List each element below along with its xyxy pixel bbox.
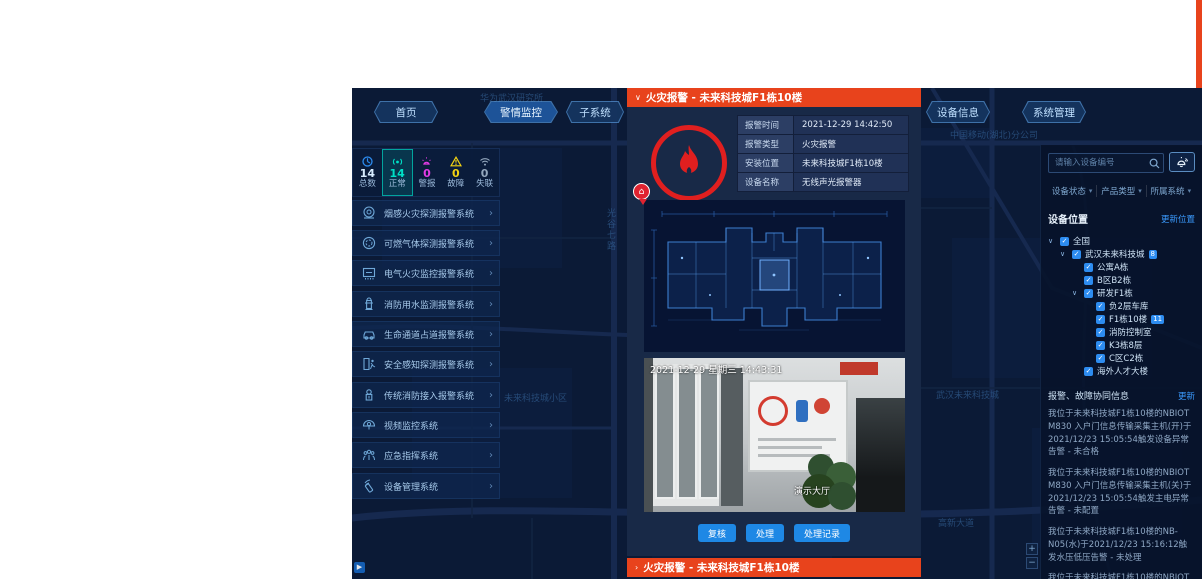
fire-alarm-title: 火灾报警 - 未来科技城F1栋10楼	[646, 90, 802, 105]
sidebar-item-label: 消防用水监测报警系统	[384, 298, 489, 311]
checkbox-checked[interactable]: ✓	[1060, 237, 1069, 246]
checkbox-checked[interactable]: ✓	[1096, 328, 1105, 337]
checkbox-checked[interactable]: ✓	[1084, 367, 1093, 376]
stat-total-label: 总数	[359, 180, 376, 189]
alarm-type-label: 报警类型	[738, 135, 794, 154]
sidebar-item-security-sense-system[interactable]: 安全感知探测报警系统›	[352, 351, 500, 377]
search-icon[interactable]	[1149, 154, 1160, 173]
stat-normal-value: 14	[390, 168, 405, 179]
checkbox-checked[interactable]: ✓	[1096, 315, 1105, 324]
tree-node-building[interactable]: ∨✓研发F1栋	[1048, 287, 1195, 299]
tree-node-floor[interactable]: ✓负2层车库	[1048, 300, 1195, 312]
sidebar-item-fire-water-system[interactable]: 消防用水监测报警系统›	[352, 291, 500, 317]
chevron-down-icon: ▾	[1138, 187, 1142, 195]
sidebar-item-electrical-fire-system[interactable]: 电气火灾监控报警系统›	[352, 260, 500, 286]
chevron-right-icon: ›	[489, 481, 493, 492]
tree-node-building[interactable]: ✓公寓A栋	[1048, 261, 1195, 273]
sidebar-item-gas-system[interactable]: 可燃气体探测报警系统›	[352, 230, 500, 256]
checkbox-checked[interactable]: ✓	[1084, 263, 1093, 272]
device-search-input[interactable]	[1048, 153, 1164, 173]
chevron-right-icon: ›	[489, 299, 493, 310]
chevron-right-icon: ›	[489, 420, 493, 431]
sidebar-item-label: 可燃气体探测报警系统	[384, 237, 489, 250]
chevron-down-icon: ▾	[1188, 187, 1192, 195]
collapse-icon: ∨	[635, 93, 641, 102]
people-icon	[361, 447, 377, 463]
alarm-map-pin[interactable]: ⌂	[633, 183, 650, 200]
nav-subsystems-label: 子系统	[567, 102, 623, 122]
fire-icon	[651, 125, 727, 201]
sidebar-item-label: 传统消防接入报警系统	[384, 389, 489, 402]
alert-message-list: 我位于未来科技城F1栋10楼的NBIOT M830 入户门信息传输采集主机(开)…	[1048, 408, 1195, 579]
camera-doorway	[721, 368, 743, 506]
signal-icon	[391, 156, 404, 167]
sidebar-item-label: 烟感火灾探测报警系统	[384, 207, 489, 220]
device-panel: 设备状态▾ 产品类型▾ 所属系统▾ 设备位置 更新位置 ∨✓全国 ∨✓武汉未来科…	[1040, 145, 1202, 579]
stat-offline[interactable]: 0 失联	[470, 149, 499, 196]
alert-banner-edge	[1196, 0, 1202, 88]
fire-alarm-modal-body: 报警时间2021-12-29 14:42:50 报警类型火灾报警 安装位置未来科…	[627, 107, 921, 556]
glass-pane	[657, 369, 673, 497]
fire-alarm-collapsed-bar[interactable]: › 火灾报警 - 未来科技城F1栋10楼	[627, 558, 921, 577]
table-row: 安装位置未来科技城F1栋10楼	[738, 154, 909, 173]
tree-node-country[interactable]: ∨✓全国	[1048, 235, 1195, 247]
sidebar-item-label: 视频监控系统	[384, 419, 489, 432]
tree-node-building[interactable]: ✓海外人才大楼	[1048, 365, 1195, 377]
red-wall-banner	[840, 362, 878, 375]
table-row: 设备名称无线声光报警器	[738, 173, 909, 192]
remote-control-icon	[361, 478, 377, 494]
glass-pane	[679, 369, 695, 497]
stat-alarm-label: 警报	[418, 180, 435, 189]
dashboard: 华为武汉研究所 中国移动(湖北)分公司 光谷七路 未来科技城小区 高新大道 武汉…	[352, 88, 1202, 579]
device-stats-panel: 14 总数 14 正常 0 警报 0 故障 0 失联	[352, 148, 500, 197]
nav-system-mgmt-button[interactable]: 系统管理	[1022, 101, 1086, 123]
camera-watermark: 演示大厅	[794, 484, 830, 497]
poster-text-line	[758, 438, 836, 441]
checkbox-checked[interactable]: ✓	[1084, 276, 1093, 285]
plant	[802, 450, 860, 512]
fire-alarm-modal: ∨ 火灾报警 - 未来科技城F1栋10楼 报警时间2021-12-29 14:4…	[627, 88, 921, 556]
checkbox-checked[interactable]: ✓	[1084, 289, 1093, 298]
nav-home-label: 首页	[375, 102, 437, 122]
camera-glass-wall	[653, 364, 719, 506]
electric-meter-icon	[361, 265, 377, 281]
camera-dark-corner	[856, 398, 905, 512]
handle-button[interactable]: 处理	[746, 524, 784, 542]
hydrant-icon	[361, 296, 377, 312]
alarm-actions: 复核 处理 处理记录	[627, 524, 921, 542]
poster-ring-logo	[758, 396, 788, 426]
device-location-title: 设备位置	[1048, 211, 1088, 226]
nav-alarm-monitor-button[interactable]: 警情监控	[484, 101, 558, 123]
fire-alarm-modal-header[interactable]: ∨ 火灾报警 - 未来科技城F1栋10楼	[627, 88, 921, 107]
tree-node-city[interactable]: ∨✓武汉未来科技城8	[1048, 248, 1195, 260]
camera-doorframe	[644, 358, 653, 512]
alerts-title: 报警、故障协同信息	[1048, 389, 1129, 402]
player-watermark-icon: ▶	[354, 562, 365, 573]
tree-node-floor[interactable]: ✓K3栋8层	[1048, 339, 1195, 351]
nav-subsystems-button[interactable]: 子系统	[566, 101, 624, 123]
floorplan-image[interactable]	[644, 200, 905, 352]
checkbox-checked[interactable]: ✓	[1096, 302, 1105, 311]
poster-red-figure	[814, 398, 830, 414]
stat-total-value: 14	[360, 168, 375, 179]
alarm-bell-icon	[421, 156, 432, 167]
device-name-label: 设备名称	[738, 173, 794, 192]
sidebar-item-smoke-fire-system[interactable]: 烟感火灾探测报警系统›	[352, 200, 500, 226]
table-row: 报警类型火灾报警	[738, 135, 909, 154]
sidebar-item-emergency-command[interactable]: 应急指挥系统›	[352, 442, 500, 468]
chevron-right-icon: ›	[489, 268, 493, 279]
alarm-bell-button[interactable]	[1169, 152, 1195, 172]
nav-alarm-monitor-label: 警情监控	[485, 102, 557, 122]
sidebar-item-label: 设备管理系统	[384, 480, 489, 493]
nav-device-info-button[interactable]: 设备信息	[926, 101, 990, 123]
table-row: 报警时间2021-12-29 14:42:50	[738, 116, 909, 135]
sidebar-item-legacy-fire-system[interactable]: 传统消防接入报警系统›	[352, 382, 500, 408]
count-badge: 8	[1149, 250, 1157, 259]
chevron-right-icon: ›	[489, 238, 493, 249]
fire-alarm-title-2: 火灾报警 - 未来科技城F1栋10楼	[643, 560, 799, 575]
tree-node-building[interactable]: ✓B区B2栋	[1048, 274, 1195, 286]
sidebar-item-label: 安全感知探测报警系统	[384, 358, 489, 371]
chevron-right-icon: ›	[489, 329, 493, 340]
sidebar-item-label: 电气火灾监控报警系统	[384, 267, 489, 280]
warning-triangle-icon	[450, 156, 462, 167]
sidebar-item-label: 应急指挥系统	[384, 449, 489, 462]
install-location-value: 未来科技城F1栋10楼	[794, 154, 909, 173]
install-location-label: 安装位置	[738, 154, 794, 173]
device-name-value: 无线声光报警器	[794, 173, 909, 192]
stat-alarm-value: 0	[423, 168, 431, 179]
map-zoom-out-button[interactable]: −	[1026, 557, 1038, 569]
fire-hydrant-icon	[361, 387, 377, 403]
poster-blue-figure	[796, 400, 808, 422]
tree-node-floor[interactable]: ✓C区C2栋	[1048, 352, 1195, 364]
filter-system[interactable]: 所属系统▾	[1146, 185, 1195, 197]
count-badge: 11	[1151, 315, 1164, 324]
stat-fault-label: 故障	[447, 180, 464, 189]
wifi-icon	[479, 156, 491, 167]
alert-message: 我位于未来科技城F1栋10楼的NBIOT M830 入户门信息传输采集主机(开)…	[1048, 408, 1195, 459]
review-button[interactable]: 复核	[698, 524, 736, 542]
alarm-time-label: 报警时间	[738, 116, 794, 135]
filter-bar: 设备状态▾ 产品类型▾ 所属系统▾	[1048, 183, 1195, 199]
nav-device-info-label: 设备信息	[927, 102, 989, 122]
alert-message: 我位于未来科技城F1栋10楼的NB-N05(水)于2021/12/23 15:1…	[1048, 526, 1195, 564]
cctv-snapshot[interactable]: 2021-12-29 星期三 14:43:31 演示大厅	[644, 358, 905, 512]
chevron-right-icon: ›	[489, 359, 493, 370]
sidebar-item-video-surveillance[interactable]: 视频监控系统›	[352, 412, 500, 438]
checkbox-checked[interactable]: ✓	[1096, 341, 1105, 350]
camera-timestamp: 2021-12-29 星期三 14:43:31	[650, 362, 782, 376]
chevron-right-icon: ›	[489, 208, 493, 219]
stat-total[interactable]: 14 总数	[353, 149, 382, 196]
chevron-right-icon: ›	[489, 390, 493, 401]
sidebar-item-device-management[interactable]: 设备管理系统›	[352, 473, 500, 499]
clock-icon	[362, 156, 373, 167]
stat-normal[interactable]: 14 正常	[382, 149, 413, 196]
refresh-alerts-link[interactable]: 更新	[1178, 390, 1195, 402]
stat-fault-value: 0	[452, 168, 460, 179]
chevron-right-icon: ›	[489, 450, 493, 461]
smoke-detector-icon	[361, 205, 377, 221]
gas-sensor-icon	[361, 235, 377, 251]
filter-product-type[interactable]: 产品类型▾	[1096, 185, 1145, 197]
nav-system-mgmt-label: 系统管理	[1023, 102, 1085, 122]
location-tree: ∨✓全国 ∨✓武汉未来科技城8 ✓公寓A栋 ✓B区B2栋 ∨✓研发F1栋 ✓负2…	[1048, 235, 1195, 377]
camera-icon	[361, 417, 377, 433]
stat-offline-label: 失联	[476, 180, 493, 189]
chevron-down-icon: ▾	[1089, 187, 1093, 195]
tree-node-floor[interactable]: ✓F1栋10楼11	[1048, 313, 1195, 325]
checkbox-checked[interactable]: ✓	[1096, 354, 1105, 363]
sidebar-item-life-channel-system[interactable]: 生命通道占道报警系统›	[352, 321, 500, 347]
alert-message: 我位于未来科技城F1栋10楼的NBIOT M830 入户门信息	[1048, 572, 1195, 579]
bell-icon	[1175, 155, 1189, 168]
expand-icon: ›	[635, 563, 638, 572]
handle-record-button[interactable]: 处理记录	[794, 524, 850, 542]
glass-pane	[701, 369, 717, 497]
screen: 华为武汉研究所 中国移动(湖北)分公司 光谷七路 未来科技城小区 高新大道 武汉…	[0, 0, 1202, 579]
alert-message: 我位于未来科技城F1栋10楼的NBIOT M830 入户门信息传输采集主机(关)…	[1048, 467, 1195, 518]
stat-fault[interactable]: 0 故障	[441, 149, 470, 196]
checkbox-checked[interactable]: ✓	[1072, 250, 1081, 259]
exit-door-icon	[361, 356, 377, 372]
tree-node-floor[interactable]: ✓消防控制室	[1048, 326, 1195, 338]
nav-home-button[interactable]: 首页	[374, 101, 438, 123]
alarm-info-table: 报警时间2021-12-29 14:42:50 报警类型火灾报警 安装位置未来科…	[737, 115, 909, 192]
alarm-time-value: 2021-12-29 14:42:50	[794, 116, 909, 135]
stat-offline-value: 0	[481, 168, 489, 179]
filter-device-status[interactable]: 设备状态▾	[1048, 185, 1096, 197]
update-location-link[interactable]: 更新位置	[1161, 213, 1195, 225]
car-icon	[361, 326, 377, 342]
sidebar-item-label: 生命通道占道报警系统	[384, 328, 489, 341]
stat-normal-label: 正常	[389, 180, 406, 189]
stat-alarm[interactable]: 0 警报	[413, 149, 442, 196]
alarm-type-value: 火灾报警	[794, 135, 909, 154]
map-zoom-in-button[interactable]: +	[1026, 543, 1038, 555]
poster-text-line	[758, 446, 822, 449]
